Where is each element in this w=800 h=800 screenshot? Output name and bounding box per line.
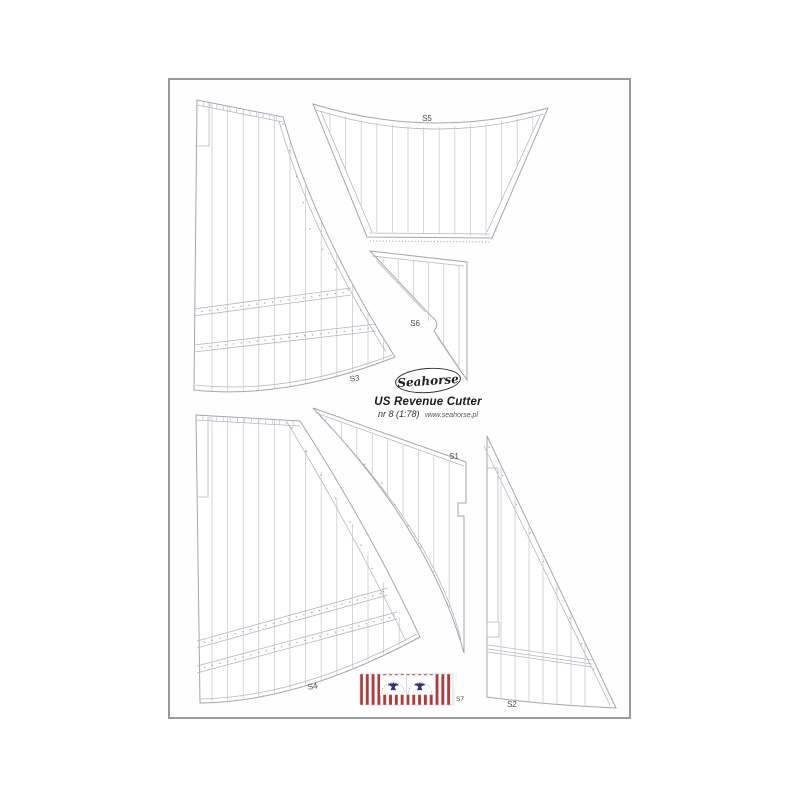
label-sail-s1: S1: [449, 452, 459, 461]
label-sail-s2: S2: [507, 700, 517, 709]
sail-s5: [313, 104, 548, 242]
kit-number: nr 8 (1:78): [378, 409, 420, 419]
label-sail-s6: S6: [410, 319, 420, 328]
flag-s7: [360, 674, 453, 705]
kit-subtitle: nr 8 (1:78) www.seahorse.pl: [358, 409, 498, 419]
publisher-block: Seahorse US Revenue Cutter nr 8 (1:78) w…: [358, 368, 498, 419]
label-sail-s5: S5: [422, 114, 432, 123]
publisher-url: www.seahorse.pl: [425, 412, 478, 419]
kit-title: US Revenue Cutter: [358, 396, 498, 408]
sail-s2: [484, 436, 616, 708]
brand-name: Seahorse: [397, 371, 459, 389]
label-sail-s4: S4: [307, 681, 319, 692]
scanned-sheet-photo: S5 S6 S3 S1 S4 S2 S7 Seahorse US Revenue…: [0, 0, 800, 800]
seahorse-logo: Seahorse: [394, 366, 462, 396]
label-flag-s7: S7: [456, 696, 464, 703]
